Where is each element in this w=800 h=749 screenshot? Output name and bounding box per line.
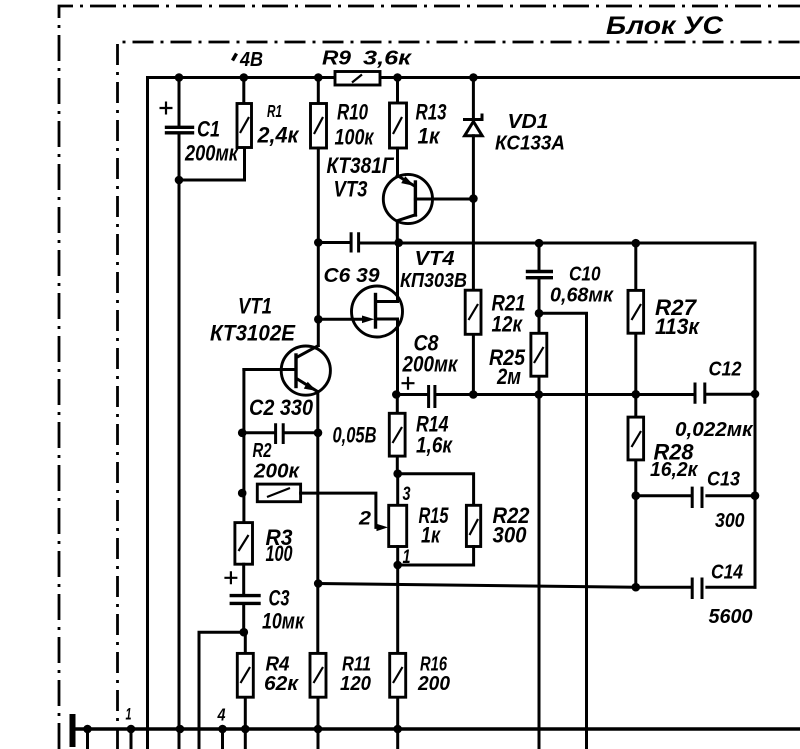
svg-text:КП303В: КП303В (400, 269, 467, 292)
svg-text:R9: R9 (322, 47, 352, 70)
svg-text:2,4к: 2,4к (257, 123, 301, 148)
svg-text:R13: R13 (416, 100, 447, 125)
svg-text:62к: 62к (264, 672, 300, 695)
svg-text:300: 300 (715, 509, 745, 532)
svg-text:R1: R1 (267, 101, 282, 121)
svg-text:4: 4 (217, 705, 226, 725)
svg-text:1,6к: 1,6к (416, 433, 454, 458)
svg-text:12к: 12к (492, 312, 524, 337)
svg-text:С14: С14 (711, 561, 744, 584)
svg-text:VT3: VT3 (334, 177, 368, 202)
svg-text:1к: 1к (418, 124, 442, 149)
svg-text:5600: 5600 (709, 605, 754, 628)
svg-text:100: 100 (266, 541, 294, 566)
svg-text:КТ3102Е: КТ3102Е (210, 321, 296, 346)
svg-text:113к: 113к (655, 314, 701, 339)
svg-text:200мк: 200мк (184, 141, 239, 166)
svg-text:200мк: 200мк (402, 352, 459, 377)
svg-text:КТ381Г: КТ381Г (327, 153, 395, 178)
svg-text:R10: R10 (337, 100, 369, 125)
svg-text:0,022мк: 0,022мк (675, 418, 754, 441)
svg-text:Блок УС: Блок УС (606, 12, 724, 40)
svg-text:С1: С1 (197, 117, 220, 142)
svg-text:3: 3 (403, 484, 411, 505)
svg-text:200: 200 (417, 672, 450, 695)
svg-text:300: 300 (493, 523, 528, 548)
svg-text:С10: С10 (569, 263, 601, 286)
svg-text:С2 330: С2 330 (249, 395, 314, 420)
svg-text:16,2к: 16,2к (650, 458, 699, 481)
svg-text:С12: С12 (709, 358, 743, 381)
svg-text:1к: 1к (421, 523, 441, 548)
svg-text:КС133А: КС133А (495, 132, 565, 155)
svg-text:200к: 200к (253, 460, 301, 483)
svg-text:0,68мк: 0,68мк (550, 284, 615, 307)
svg-text:2: 2 (358, 508, 371, 530)
svg-text:С6 39: С6 39 (324, 264, 381, 287)
svg-text:120: 120 (340, 672, 372, 695)
svg-text:VT4: VT4 (415, 247, 456, 270)
svg-text:10мк: 10мк (262, 609, 305, 634)
svg-text:С3: С3 (269, 586, 290, 611)
svg-text:С13: С13 (707, 468, 741, 491)
svg-text:VT1: VT1 (238, 294, 272, 319)
svg-text:2м: 2м (496, 364, 521, 389)
svg-text:3,6к: 3,6к (363, 47, 413, 70)
svg-text:0,05В: 0,05В (333, 423, 377, 448)
svg-text:VD1: VD1 (508, 110, 549, 133)
svg-text:100к: 100к (335, 125, 376, 150)
svg-text:4В: 4В (239, 48, 263, 71)
svg-text:1: 1 (126, 706, 132, 724)
